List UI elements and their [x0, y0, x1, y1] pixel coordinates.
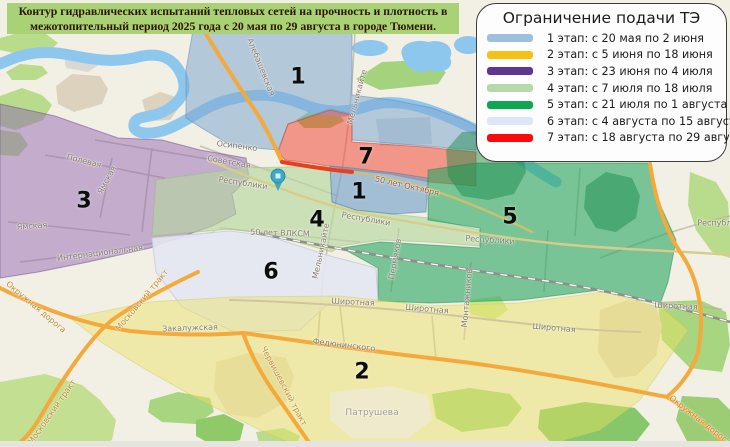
lake — [401, 41, 451, 72]
stage-1-label: 1 этап: с 20 мая по 2 июня — [547, 32, 704, 45]
stage-7-swatch — [487, 134, 533, 142]
legend-title: Ограничение подачи ТЭ — [477, 9, 726, 27]
zone-number-4: 4 — [309, 208, 324, 233]
stage-6-swatch — [487, 117, 533, 125]
stage-3-label: 3 этап: с 23 июня по 4 июля — [547, 65, 713, 78]
place-label-patrusheva: Патрушева — [345, 408, 398, 418]
stage-1-swatch — [487, 34, 533, 42]
map-screenshot: Полевая Ямская Ямская Интернациональная … — [0, 0, 730, 447]
stage-5-label: 5 этап: с 21 июля по 1 августа — [547, 98, 727, 111]
zone-number-2: 2 — [354, 360, 369, 385]
legend-item-stage-7: 7 этап: с 18 августа по 29 августа — [477, 130, 726, 147]
zone-number-6: 6 — [263, 260, 278, 285]
stage-5-swatch — [487, 101, 533, 109]
legend-item-stage-1: 1 этап: с 20 мая по 2 июня — [477, 30, 726, 47]
bottom-strip — [0, 441, 730, 447]
legend-item-stage-3: 3 этап: с 23 июня по 4 июля — [477, 63, 726, 80]
lake — [352, 40, 388, 56]
zone-number-3: 3 — [76, 189, 91, 214]
legend-panel: Ограничение подачи ТЭ 1 этап: с 20 мая п… — [476, 3, 727, 162]
legend-item-stage-4: 4 этап: с 7 июля по 18 июля — [477, 80, 726, 97]
legend-item-stage-2: 2 этап: с 5 июня по 18 июня — [477, 47, 726, 64]
zone-number-7: 7 — [358, 145, 373, 170]
zone-number-1: 1 — [290, 65, 305, 90]
zone-number-5: 5 — [502, 205, 517, 230]
map-title: Контур гидравлических испытаний тепловых… — [7, 3, 459, 34]
legend-item-stage-5: 5 этап: с 21 июля по 1 августа — [477, 96, 726, 113]
stage-3-swatch — [487, 67, 533, 75]
zone-number-1b: 1 — [351, 180, 366, 205]
stage-2-label: 2 этап: с 5 июня по 18 июня — [547, 48, 713, 61]
stage-7-label: 7 этап: с 18 августа по 29 августа — [547, 131, 730, 144]
street-label-respubliki-4: Республики — [697, 219, 730, 228]
stage-4-label: 4 этап: с 7 июля по 18 июля — [547, 82, 712, 95]
stage-2-swatch — [487, 51, 533, 59]
stage-4-swatch — [487, 84, 533, 92]
legend-item-stage-6: 6 этап: с 4 августа по 15 августа — [477, 113, 726, 130]
stage-6-label: 6 этап: с 4 августа по 15 августа — [547, 115, 730, 128]
